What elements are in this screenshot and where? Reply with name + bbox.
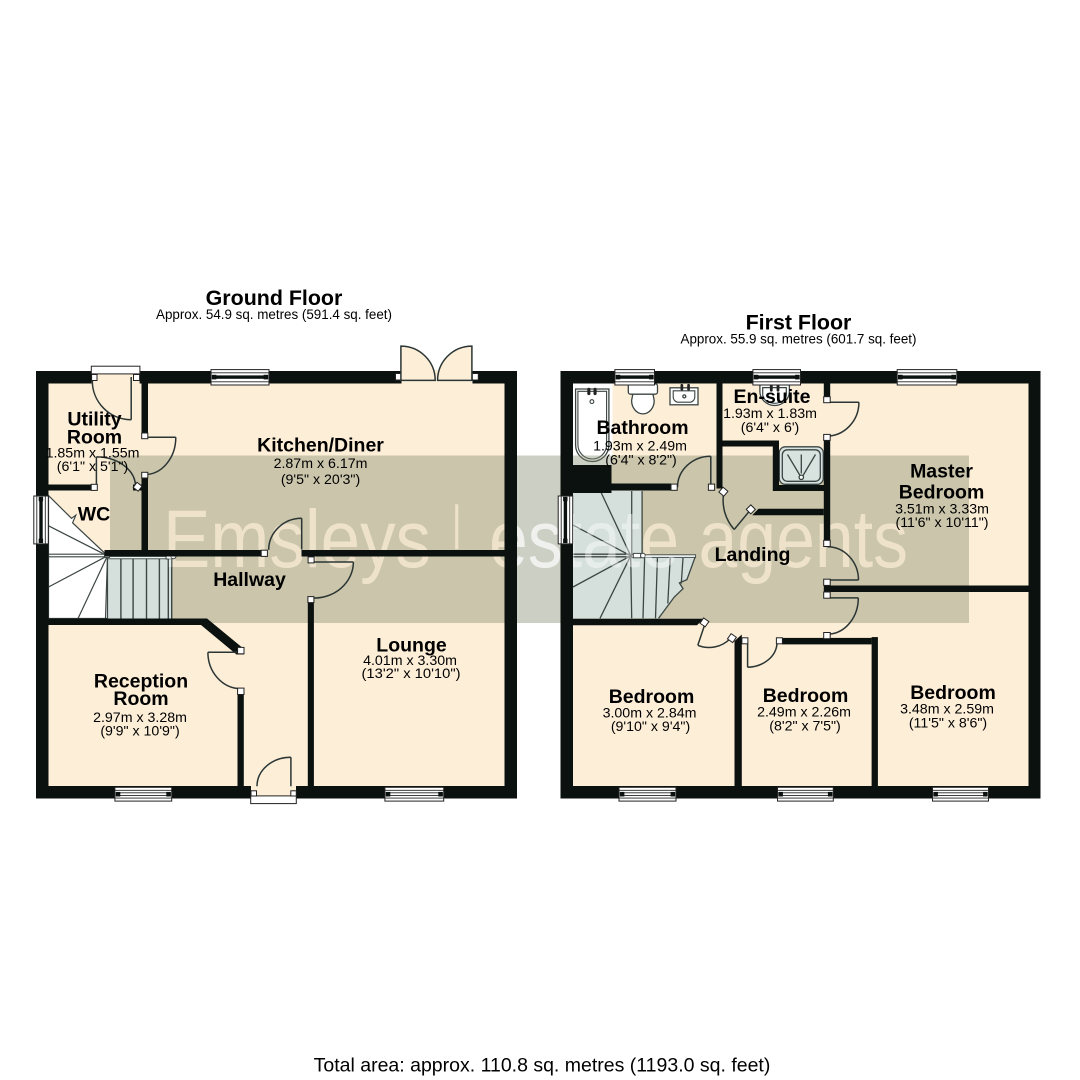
svg-text:(13'2" x 10'10"): (13'2" x 10'10") [362,666,461,682]
svg-text:Room: Room [113,688,168,710]
svg-text:En-suite: En-suite [734,386,811,408]
svg-text:Bedroom: Bedroom [899,482,985,504]
svg-text:(11'6" x 10'11"): (11'6" x 10'11") [895,515,988,531]
svg-text:(6'4" x 6'): (6'4" x 6') [741,420,800,436]
svg-text:Master: Master [910,461,973,483]
svg-text:Kitchen/Diner: Kitchen/Diner [257,435,384,457]
svg-text:(6'4" x 8'2"): (6'4" x 8'2") [605,453,676,469]
svg-text:Hallway: Hallway [213,569,286,591]
svg-text:Landing: Landing [715,544,791,566]
svg-text:Approx. 55.9 sq. metres (601.7: Approx. 55.9 sq. metres (601.7 sq. feet) [681,332,917,347]
svg-text:(8'2" x 7'5"): (8'2" x 7'5") [769,719,840,735]
svg-text:Total area: approx. 110.8 sq.: Total area: approx. 110.8 sq. metres (11… [314,1055,771,1077]
svg-text:(9'5" x 20'3"): (9'5" x 20'3") [281,472,360,488]
svg-text:(9'9" x 10'9"): (9'9" x 10'9") [100,724,179,740]
svg-text:WC: WC [78,504,111,526]
svg-text:2.87m x 6.17m: 2.87m x 6.17m [274,456,368,472]
svg-text:(9'10" x 9'4"): (9'10" x 9'4") [611,719,690,735]
svg-text:(6'1" x 5'1"): (6'1" x 5'1") [57,459,128,475]
svg-text:Approx. 54.9 sq. metres (591.4: Approx. 54.9 sq. metres (591.4 sq. feet) [156,307,392,322]
svg-text:(11'5" x 8'6"): (11'5" x 8'6") [909,716,987,732]
svg-text:Bathroom: Bathroom [596,417,688,439]
